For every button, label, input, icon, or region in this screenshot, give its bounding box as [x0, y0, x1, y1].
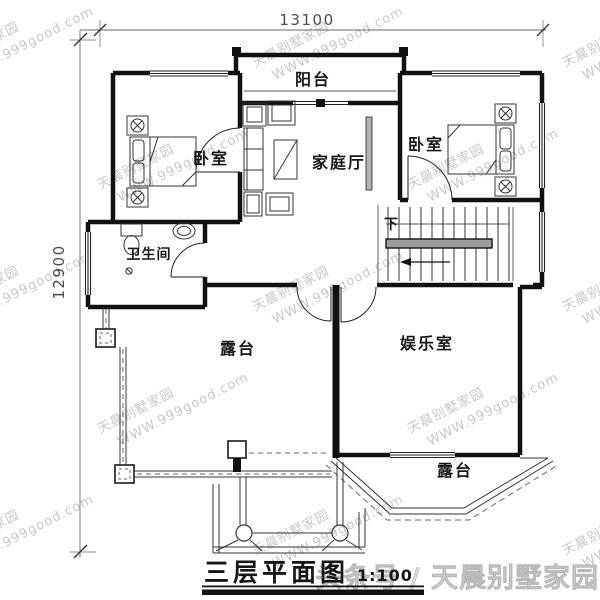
label-bathroom: 卫生间: [127, 246, 172, 263]
stair-handrail: [386, 239, 492, 248]
label-bedroom-left: 卧室: [193, 149, 229, 168]
label-terrace-bay: 露台: [437, 461, 473, 480]
label-terrace: 露台: [220, 339, 256, 358]
label-family-hall: 家庭厅: [312, 153, 366, 172]
label-balcony: 阳台: [295, 70, 331, 89]
floor-plan-drawing: 13100 12900: [0, 0, 600, 600]
terrace-railings: [96, 307, 332, 483]
furniture-bedroom-right: [448, 104, 516, 196]
porch-structure: [213, 462, 365, 553]
furniture-bedroom-left: [127, 116, 196, 207]
stair-arrow: [400, 258, 411, 266]
label-entertainment-room: 娱乐室: [400, 334, 454, 353]
plan-title: 三层平面图: [204, 558, 349, 587]
plan-scale: 1:100: [357, 566, 413, 585]
tv-wall: [366, 117, 372, 190]
dimension-top-value: 13100: [279, 11, 334, 29]
windows: [84, 69, 547, 460]
floor-plan-page: 天晨别墅家园WWW.999good.com天晨别墅家园WWW.999good.c…: [0, 0, 600, 600]
label-bedroom-right: 卧室: [408, 135, 444, 154]
title-underline-thick: [202, 590, 424, 596]
dimension-left-value: 12900: [50, 244, 68, 299]
title-underline-thin: [202, 586, 424, 588]
stair-direction-label: 下: [384, 217, 399, 233]
